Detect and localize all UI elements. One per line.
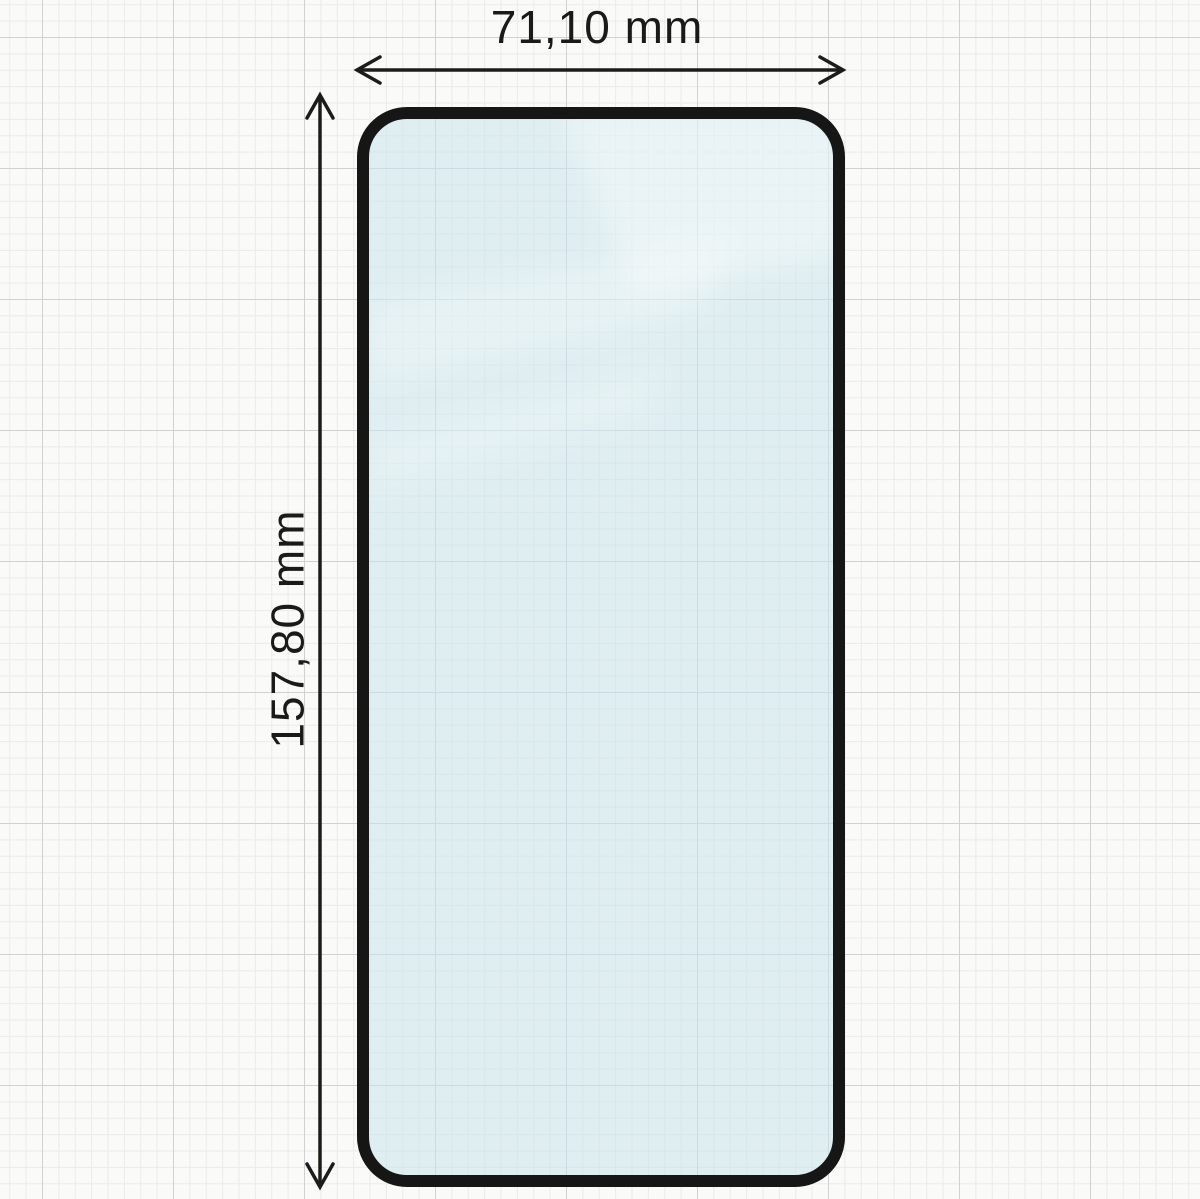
height-dimension-label: 157,80 mm: [263, 509, 314, 748]
width-dimension-arrow: [357, 57, 843, 83]
graph-paper-background: 71,10 mm 157,80 mm: [0, 0, 1200, 1199]
width-dimension-label: 71,10 mm: [353, 2, 841, 53]
dimension-diagram: [0, 0, 1200, 1199]
